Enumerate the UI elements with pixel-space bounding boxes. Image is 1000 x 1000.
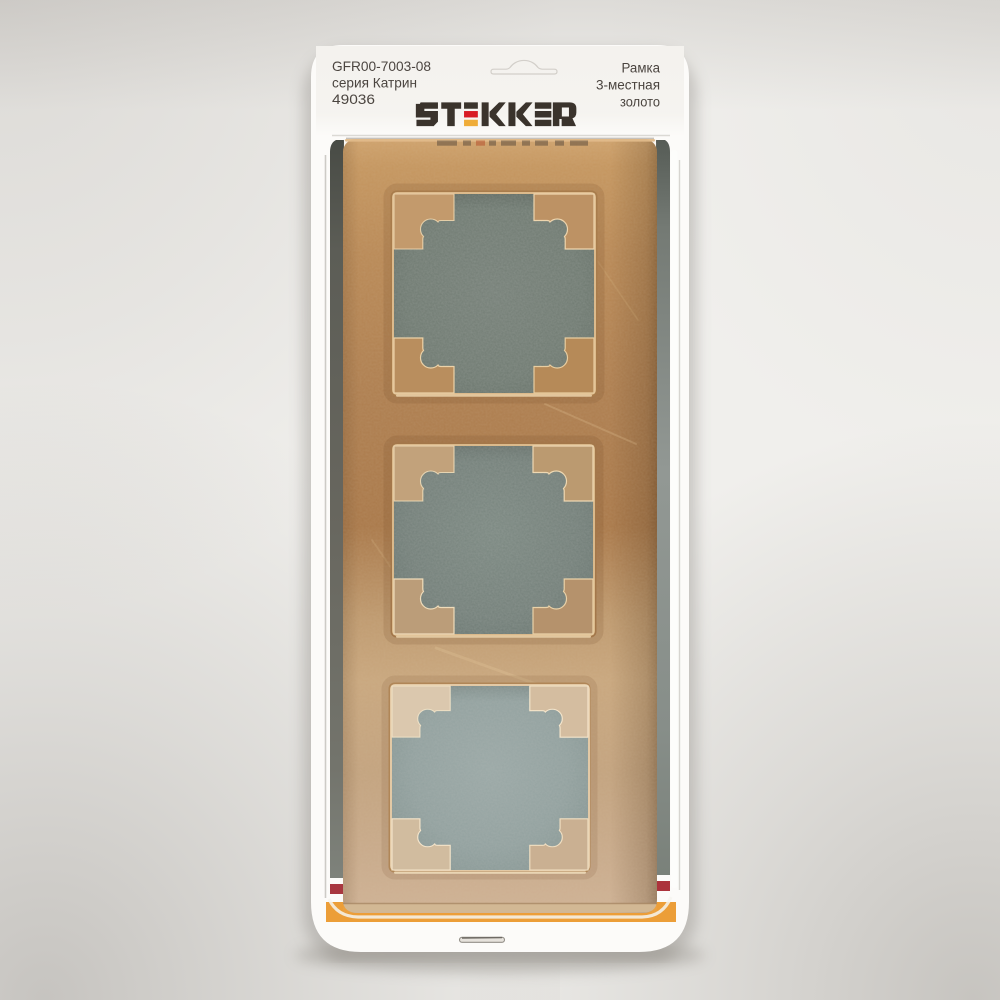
svg-text:GFR00-7003-08: GFR00-7003-08 (332, 58, 431, 74)
svg-text:Рамка: Рамка (622, 61, 661, 76)
svg-text:49036: 49036 (332, 91, 375, 107)
svg-text:3-местная: 3-местная (596, 78, 660, 93)
svg-text:золото: золото (620, 95, 660, 110)
svg-text:серия Катрин: серия Катрин (332, 75, 417, 91)
